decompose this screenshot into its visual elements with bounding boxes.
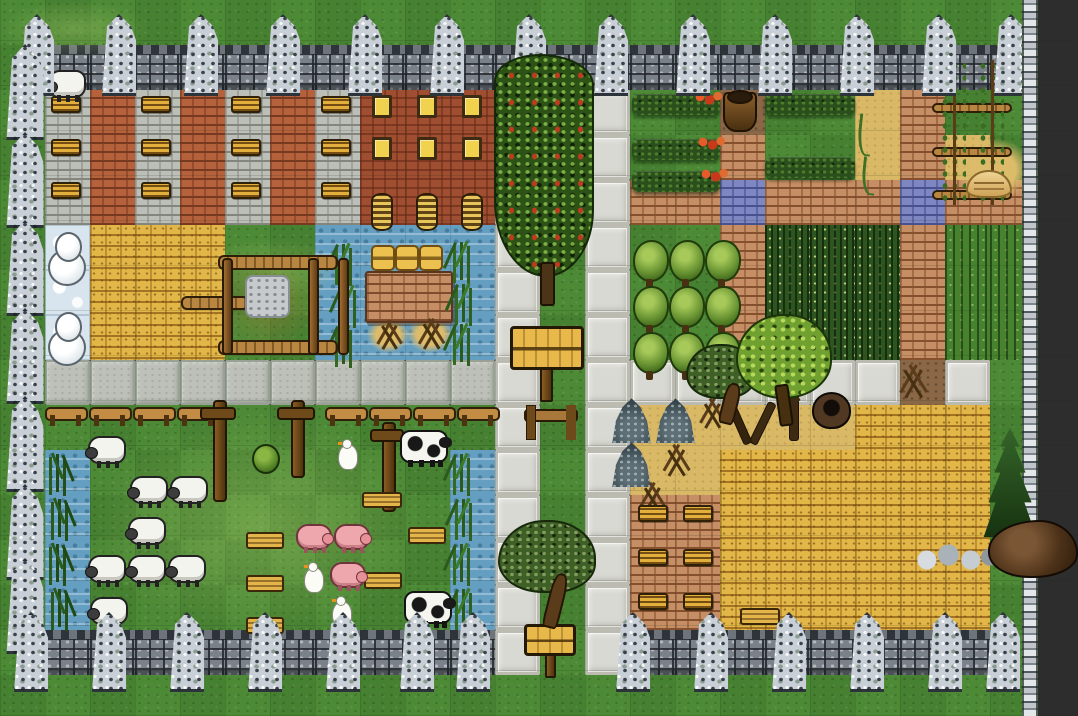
shrub[interactable]	[705, 240, 741, 282]
tile-stone-wall[interactable]	[720, 45, 765, 90]
tile-brick-wall[interactable]	[900, 225, 945, 270]
tile-white-path[interactable]	[945, 360, 990, 405]
tallpost[interactable]	[281, 400, 311, 478]
tile-red-brick-building[interactable]	[90, 180, 135, 225]
fence-bar[interactable]	[218, 255, 338, 270]
window-log[interactable]	[231, 182, 261, 199]
snowman[interactable]	[48, 312, 86, 366]
pot[interactable]	[723, 92, 757, 132]
tile-grass[interactable]	[540, 675, 585, 716]
tile-hay[interactable]	[765, 540, 810, 585]
sheep[interactable]	[88, 555, 126, 583]
brickchunk[interactable]	[365, 271, 453, 323]
tile-red-brick-building[interactable]	[180, 135, 225, 180]
window-log[interactable]	[51, 182, 81, 199]
plank[interactable]	[408, 527, 446, 544]
tile-hay[interactable]	[90, 315, 135, 360]
coil[interactable]	[416, 193, 438, 231]
window-log[interactable]	[321, 182, 351, 199]
tile-gray-road[interactable]	[225, 360, 270, 405]
tile-stone-wall[interactable]	[45, 630, 90, 675]
tile-wheat-crop[interactable]	[810, 225, 855, 270]
plank[interactable]	[246, 532, 284, 549]
plank[interactable]	[246, 575, 284, 592]
tile-gray-road[interactable]	[135, 360, 180, 405]
bush[interactable]	[252, 444, 280, 474]
pig[interactable]	[330, 562, 366, 588]
rail[interactable]	[133, 407, 176, 428]
window-yellow[interactable]	[372, 95, 392, 118]
tile-hay[interactable]	[855, 405, 900, 450]
tile-outside	[1035, 225, 1078, 270]
tile-stone-wall[interactable]	[225, 45, 270, 90]
corn[interactable]	[450, 497, 476, 537]
tile-gray-road[interactable]	[45, 360, 90, 405]
tile-brick-wall[interactable]	[900, 315, 945, 360]
sheep[interactable]	[170, 476, 208, 504]
window-log[interactable]	[51, 139, 81, 156]
tile-water-gate[interactable]	[720, 180, 765, 225]
tile-hay[interactable]	[90, 270, 135, 315]
tile-grass[interactable]	[495, 675, 540, 716]
tile-gray-road[interactable]	[90, 360, 135, 405]
tile-outside	[1035, 0, 1078, 45]
stonepatch[interactable]	[245, 275, 290, 318]
tile-brick-wall[interactable]	[900, 270, 945, 315]
shrub[interactable]	[669, 286, 705, 328]
tile-hay[interactable]	[810, 450, 855, 495]
rail[interactable]	[45, 407, 88, 428]
tile-hay[interactable]	[810, 585, 855, 630]
fruit[interactable]	[695, 134, 727, 152]
pig[interactable]	[296, 524, 332, 550]
tile-wheat-crop[interactable]	[855, 315, 900, 360]
window-yellow[interactable]	[462, 95, 482, 118]
snowman[interactable]	[48, 232, 86, 286]
tile-hay[interactable]	[855, 450, 900, 495]
shrub[interactable]	[633, 286, 669, 328]
sheep[interactable]	[128, 555, 166, 583]
bale[interactable]	[419, 245, 443, 271]
tile-gray-road[interactable]	[405, 360, 450, 405]
tile-white-path[interactable]	[495, 450, 540, 495]
tile-brick-wall[interactable]	[765, 180, 810, 225]
rail[interactable]	[413, 407, 456, 428]
tile-grass[interactable]	[45, 675, 90, 716]
corn[interactable]	[450, 282, 476, 322]
tile-hay[interactable]	[135, 270, 180, 315]
sheep[interactable]	[88, 436, 126, 464]
deadbush[interactable]	[412, 319, 448, 351]
fence-bar[interactable]	[218, 340, 338, 355]
coil[interactable]	[371, 193, 393, 231]
tile-gray-road[interactable]	[360, 360, 405, 405]
deadbush[interactable]	[657, 445, 692, 478]
tile-grass[interactable]	[360, 675, 405, 716]
apple-tree[interactable]	[494, 54, 594, 306]
tile-outside	[1035, 585, 1078, 630]
window-log[interactable]	[683, 593, 713, 610]
tile-hay[interactable]	[945, 450, 990, 495]
corn[interactable]	[448, 322, 474, 362]
tile-white-path[interactable]	[585, 315, 630, 360]
tile-spiky-crop[interactable]	[945, 225, 990, 270]
tile-outside	[1035, 45, 1078, 90]
tile-red-brick-building[interactable]	[270, 180, 315, 225]
window-log[interactable]	[231, 96, 261, 113]
window-log[interactable]	[683, 549, 713, 566]
tile-spiky-crop[interactable]	[945, 315, 990, 360]
shrub[interactable]	[633, 240, 669, 282]
stones[interactable]	[914, 534, 1000, 576]
sign[interactable]	[524, 624, 576, 656]
window-log[interactable]	[321, 96, 351, 113]
tile-red-brick-building[interactable]	[270, 135, 315, 180]
tile-outside	[1035, 315, 1078, 360]
sheep[interactable]	[168, 555, 206, 583]
tile-gray-road[interactable]	[450, 360, 495, 405]
fruit[interactable]	[698, 166, 730, 184]
hedge[interactable]	[765, 94, 855, 115]
tile-gray-road[interactable]	[180, 360, 225, 405]
sign[interactable]	[510, 326, 584, 370]
tile-spiky-crop[interactable]	[945, 270, 990, 315]
tile-wheat-crop[interactable]	[765, 225, 810, 270]
window-log[interactable]	[141, 139, 171, 156]
boar-rock[interactable]	[988, 520, 1078, 578]
signpost[interactable]	[545, 654, 556, 678]
reed[interactable]	[44, 542, 70, 582]
gate[interactable]	[524, 405, 578, 438]
fence-pole[interactable]	[222, 258, 233, 355]
tile-wheat-crop[interactable]	[855, 225, 900, 270]
tile-stone-wall[interactable]	[810, 630, 855, 675]
tile-red-brick-building[interactable]	[180, 90, 225, 135]
fence-bar[interactable]	[181, 296, 249, 310]
tile-wheat-crop[interactable]	[855, 270, 900, 315]
tile-outside	[1035, 90, 1078, 135]
tile-gray-road[interactable]	[270, 360, 315, 405]
tile-hay[interactable]	[135, 225, 180, 270]
fence-pole[interactable]	[338, 258, 349, 355]
game-map[interactable]	[0, 0, 1078, 716]
tile-outside	[1035, 675, 1078, 716]
thinwall[interactable]	[1022, 0, 1038, 716]
tile-hay[interactable]	[135, 315, 180, 360]
fence-pole[interactable]	[308, 258, 319, 355]
window-log[interactable]	[638, 593, 668, 610]
tile-outside	[1035, 360, 1078, 405]
tile-red-brick-building[interactable]	[90, 90, 135, 135]
tile-hay[interactable]	[765, 495, 810, 540]
tile-red-brick-building[interactable]	[270, 90, 315, 135]
corn[interactable]	[448, 452, 474, 492]
tile-wheat-crop[interactable]	[765, 270, 810, 315]
plank[interactable]	[362, 492, 402, 508]
tile-hay[interactable]	[900, 405, 945, 450]
shrub[interactable]	[633, 332, 669, 374]
tile-white-path[interactable]	[585, 360, 630, 405]
window-yellow[interactable]	[417, 95, 437, 118]
tile-outside	[1035, 270, 1078, 315]
corn[interactable]	[448, 240, 474, 280]
window-log[interactable]	[321, 139, 351, 156]
tile-water-gate[interactable]	[900, 180, 945, 225]
tallpost[interactable]	[204, 400, 232, 502]
tile-grass[interactable]	[225, 0, 270, 45]
tile-hay[interactable]	[855, 495, 900, 540]
tile-grass[interactable]	[540, 0, 585, 45]
bale[interactable]	[371, 245, 395, 271]
round-tree[interactable]	[736, 314, 832, 426]
window-yellow[interactable]	[462, 137, 482, 160]
tile-hay[interactable]	[945, 405, 990, 450]
tile-red-brick-building[interactable]	[180, 180, 225, 225]
tile-hay[interactable]	[810, 495, 855, 540]
rail[interactable]	[325, 407, 368, 428]
tile-brick-wall[interactable]	[855, 180, 900, 225]
reed[interactable]	[46, 497, 72, 537]
tile-hay[interactable]	[720, 450, 765, 495]
sheep[interactable]	[128, 517, 166, 545]
tile-outside	[1035, 180, 1078, 225]
rail[interactable]	[89, 407, 132, 428]
window-yellow[interactable]	[372, 137, 392, 160]
window-yellow[interactable]	[417, 137, 437, 160]
tile-outside	[1035, 405, 1078, 450]
reed[interactable]	[46, 587, 72, 627]
tile-wheat-crop[interactable]	[810, 270, 855, 315]
tile-hay[interactable]	[90, 225, 135, 270]
tile-hay[interactable]	[900, 450, 945, 495]
tile-grass[interactable]	[720, 0, 765, 45]
tile-stone-wall[interactable]	[630, 45, 675, 90]
tile-hay[interactable]	[855, 540, 900, 585]
cow[interactable]	[400, 430, 448, 463]
reed[interactable]	[44, 452, 70, 492]
rail[interactable]	[457, 407, 500, 428]
window-log[interactable]	[231, 139, 261, 156]
olive-tree[interactable]	[498, 520, 596, 628]
tile-outside	[1035, 630, 1078, 675]
corn[interactable]	[448, 542, 474, 582]
goose[interactable]	[338, 444, 358, 470]
coil[interactable]	[461, 193, 483, 231]
tile-gray-road[interactable]	[315, 360, 360, 405]
plank[interactable]	[740, 608, 780, 625]
tile-outside	[1035, 450, 1078, 495]
goose[interactable]	[304, 567, 324, 593]
plank[interactable]	[364, 572, 402, 589]
hedge[interactable]	[765, 157, 855, 178]
window-log[interactable]	[683, 505, 713, 522]
tile-grass[interactable]	[810, 675, 855, 716]
shrub[interactable]	[669, 240, 705, 282]
tile-red-brick-building[interactable]	[90, 135, 135, 180]
tile-hay[interactable]	[720, 540, 765, 585]
window-log[interactable]	[51, 96, 81, 113]
tile-grass[interactable]	[540, 450, 585, 495]
tile-grass[interactable]	[630, 0, 675, 45]
tile-brick-wall[interactable]	[810, 180, 855, 225]
tile-hay[interactable]	[720, 495, 765, 540]
window-log[interactable]	[141, 182, 171, 199]
tile-hay[interactable]	[810, 540, 855, 585]
tile-hay[interactable]	[765, 450, 810, 495]
window-log[interactable]	[638, 505, 668, 522]
deadbush[interactable]	[372, 321, 404, 351]
tile-brick-wall[interactable]	[900, 135, 945, 180]
window-log[interactable]	[638, 549, 668, 566]
window-log[interactable]	[141, 96, 171, 113]
tile-outside	[1035, 135, 1078, 180]
bale[interactable]	[395, 245, 419, 271]
sheep[interactable]	[130, 476, 168, 504]
pig[interactable]	[334, 524, 370, 550]
signpost[interactable]	[540, 368, 553, 402]
deadbush[interactable]	[894, 364, 930, 400]
